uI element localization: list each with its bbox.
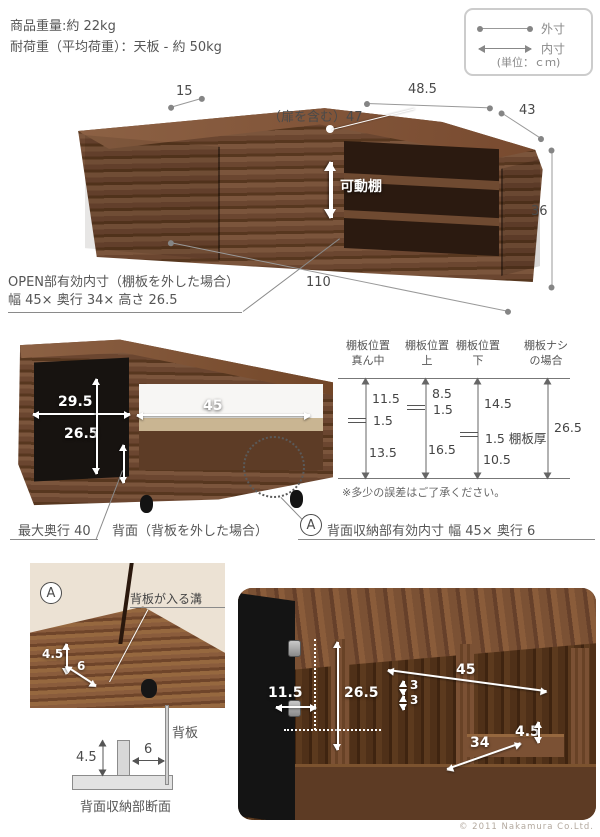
open-compartment <box>344 141 499 256</box>
cross-section-diagram: 背板 4.5 6 背面収納部断面 <box>30 700 225 818</box>
copyright-text: © 2011 Nakamura Co.Ltd. <box>459 822 594 832</box>
circled-a-mark: A <box>300 514 322 536</box>
groove-label-underline <box>130 607 225 608</box>
movable-shelf-label: 可動棚 <box>340 176 382 196</box>
shelf-col4-header-line2: の場合 <box>516 353 576 368</box>
interior-corner-depth-value: 11.5 <box>268 685 303 701</box>
front-view-photo: 可動棚 <box>60 100 550 288</box>
xsec-gap-arrow <box>133 760 164 761</box>
hinge-top-icon <box>288 640 301 657</box>
shelf-col2-arrow <box>426 379 427 479</box>
rear-shelf-board <box>139 418 323 431</box>
shelf-col3-top-value: 14.5 <box>484 396 512 411</box>
movable-shelf-arrow <box>329 162 333 218</box>
xsec-gap-value: 6 <box>144 742 152 757</box>
left-door <box>85 135 220 260</box>
open-note-line1: OPEN部有効内寸（棚板を外した場合） <box>8 274 239 292</box>
shelf-col4-header-line1: 棚板ナシ <box>516 338 576 353</box>
load-capacity-text: 耐荷重（平均荷重）：天板 - 約 50kg <box>10 37 222 58</box>
rear-corner-width-arrow <box>33 413 130 415</box>
dimension-legend: 外寸 内寸 (単位：ｃｍ) <box>464 8 593 76</box>
rear-inner-height-arrow <box>96 379 98 474</box>
shelf-col2-board-marker <box>407 405 425 410</box>
shelf-col4-arrow <box>548 379 549 479</box>
legend-unit-label: (単位：ｃｍ) <box>466 54 591 70</box>
shelf-col3-bottom-value: 10.5 <box>483 452 511 467</box>
shelf-col1-header-line1: 棚板位置 <box>338 338 398 353</box>
product-weight-text: 商品重量:約 22kg <box>10 16 222 37</box>
legend-outer-label: 外寸 <box>541 20 565 37</box>
shelf-position-chart: 棚板位置 真ん中 棚板位置 上 棚板位置 下 棚板ナシ の場合 11.5 1.5… <box>336 338 598 502</box>
interior-pitch-upper-arrow <box>403 681 405 695</box>
tolerance-note: ※多少の誤差はご了承ください。 <box>342 484 505 500</box>
dim-left-depth-value: 15 <box>176 84 193 99</box>
interior-height-value: 26.5 <box>344 685 379 701</box>
xsec-back-panel-label: 背板 <box>172 722 198 741</box>
rear-open-width-arrow <box>137 414 310 416</box>
interior-view-photo: 11.5 26.5 45 3 3 34 4.5 <box>238 588 596 820</box>
detail-circled-a-mark: A <box>40 582 62 604</box>
max-depth-underline <box>10 539 98 540</box>
product-info: 商品重量:約 22kg 耐荷重（平均荷重）：天板 - 約 50kg <box>10 16 222 58</box>
interior-height-arrow <box>337 642 339 750</box>
shelf-board-lower <box>344 210 499 227</box>
rear-back-panel <box>34 358 129 482</box>
xsec-back-panel <box>165 705 169 785</box>
detail-circled-a-letter: A <box>47 586 56 601</box>
shelf-col1-arrow <box>366 379 367 479</box>
rear-lip-arrow <box>123 445 125 483</box>
rear-caption: 背面（背板を外した場合） <box>112 520 268 539</box>
interior-corner-dotted-vline <box>314 639 316 730</box>
open-note: OPEN部有効内寸（棚板を外した場合） 幅 45× 奥行 34× 高さ 26.5 <box>8 274 239 310</box>
interior-width-value: 45 <box>456 662 475 678</box>
shelf-col4-header: 棚板ナシ の場合 <box>516 338 576 368</box>
shelf-col2-middle-value: 1.5 <box>433 402 453 417</box>
chart-top-line <box>338 378 570 379</box>
shelf-col1-board-marker <box>348 418 366 423</box>
product-dimension-sheet: 商品重量:約 22kg 耐荷重（平均荷重）：天板 - 約 50kg 外寸 内寸 … <box>0 0 600 837</box>
legend-outer-row: 外寸 <box>479 20 565 37</box>
shelf-col3-middle-value: 1.5 棚板厚 <box>485 428 546 447</box>
dim-total-width-value: 110 <box>306 275 331 290</box>
interior-corner-depth-arrow <box>276 706 316 708</box>
dim-right-depth-value: 43 <box>519 103 536 118</box>
interior-pitch-upper-value: 3 <box>410 678 418 692</box>
a-note-label: 背面収納部有効内寸 幅 45× 奥行 6 <box>327 520 535 539</box>
shelf-col1-middle-value: 1.5 <box>373 413 393 428</box>
open-note-underline <box>8 312 242 313</box>
xsec-divider <box>117 740 130 776</box>
rear-inner-height-value: 26.5 <box>64 426 99 442</box>
interior-pitch-lower-arrow <box>403 696 405 710</box>
rear-open-width-value: 45 <box>203 398 222 414</box>
groove-label: 背板が入る溝 <box>130 590 202 607</box>
shelf-col2-top-value: 8.5 <box>432 386 452 401</box>
interior-divider-left <box>331 639 349 774</box>
hinge-bottom-icon <box>288 700 301 717</box>
shelf-col3-header-line2: 下 <box>448 353 508 368</box>
dim-height-line <box>552 150 553 289</box>
shelf-col1-bottom-value: 13.5 <box>369 445 397 460</box>
shelf-col3-header-line1: 棚板位置 <box>448 338 508 353</box>
dim-door-inclusive-value: （扉を含む）47 <box>268 106 363 125</box>
shelf-col4-total-value: 26.5 <box>554 420 582 435</box>
groove-height-value: 4.5 <box>42 647 63 661</box>
shelf-col2-bottom-value: 16.5 <box>428 442 456 457</box>
dashed-highlight-circle <box>243 436 305 498</box>
circled-a-letter: A <box>307 518 316 533</box>
chart-bottom-line <box>338 478 570 479</box>
interior-lip-arrow <box>538 722 540 743</box>
rear-corner-width-value: 29.5 <box>58 394 93 410</box>
a-note-underline <box>298 539 595 540</box>
max-depth-label: 最大奥行 40 <box>18 520 91 539</box>
xsec-height-arrow <box>103 741 104 776</box>
interior-floor <box>288 764 596 820</box>
interior-side-panel <box>571 648 589 778</box>
open-note-line2: 幅 45× 奥行 34× 高さ 26.5 <box>8 292 239 310</box>
shelf-col3-arrow <box>478 379 479 479</box>
shelf-col1-header: 棚板位置 真ん中 <box>338 338 398 368</box>
shelf-col1-top-value: 11.5 <box>372 391 400 406</box>
interior-pitch-lower-value: 3 <box>410 693 418 707</box>
inner-dimension-arrow-icon <box>479 48 531 49</box>
groove-depth-value: 6 <box>77 659 85 673</box>
dim-height-value: 36 <box>531 204 548 219</box>
dim-top-width-value: 48.5 <box>408 82 437 97</box>
interior-corner-dotted-hline <box>284 729 381 731</box>
rear-view-photo: 29.5 45 26.5 <box>15 334 333 520</box>
xsec-caption: 背面収納部断面 <box>80 796 171 815</box>
detail-caster <box>141 679 157 698</box>
outer-dimension-line-icon <box>479 28 531 29</box>
shelf-col3-board-marker <box>460 432 478 437</box>
xsec-height-value: 4.5 <box>76 750 97 765</box>
shelf-col3-header: 棚板位置 下 <box>448 338 508 368</box>
caster-left <box>140 495 153 513</box>
xsec-base-board <box>72 775 173 790</box>
interior-depth-value: 34 <box>470 735 489 751</box>
shelf-col1-header-line2: 真ん中 <box>338 353 398 368</box>
caster-right <box>290 490 303 508</box>
